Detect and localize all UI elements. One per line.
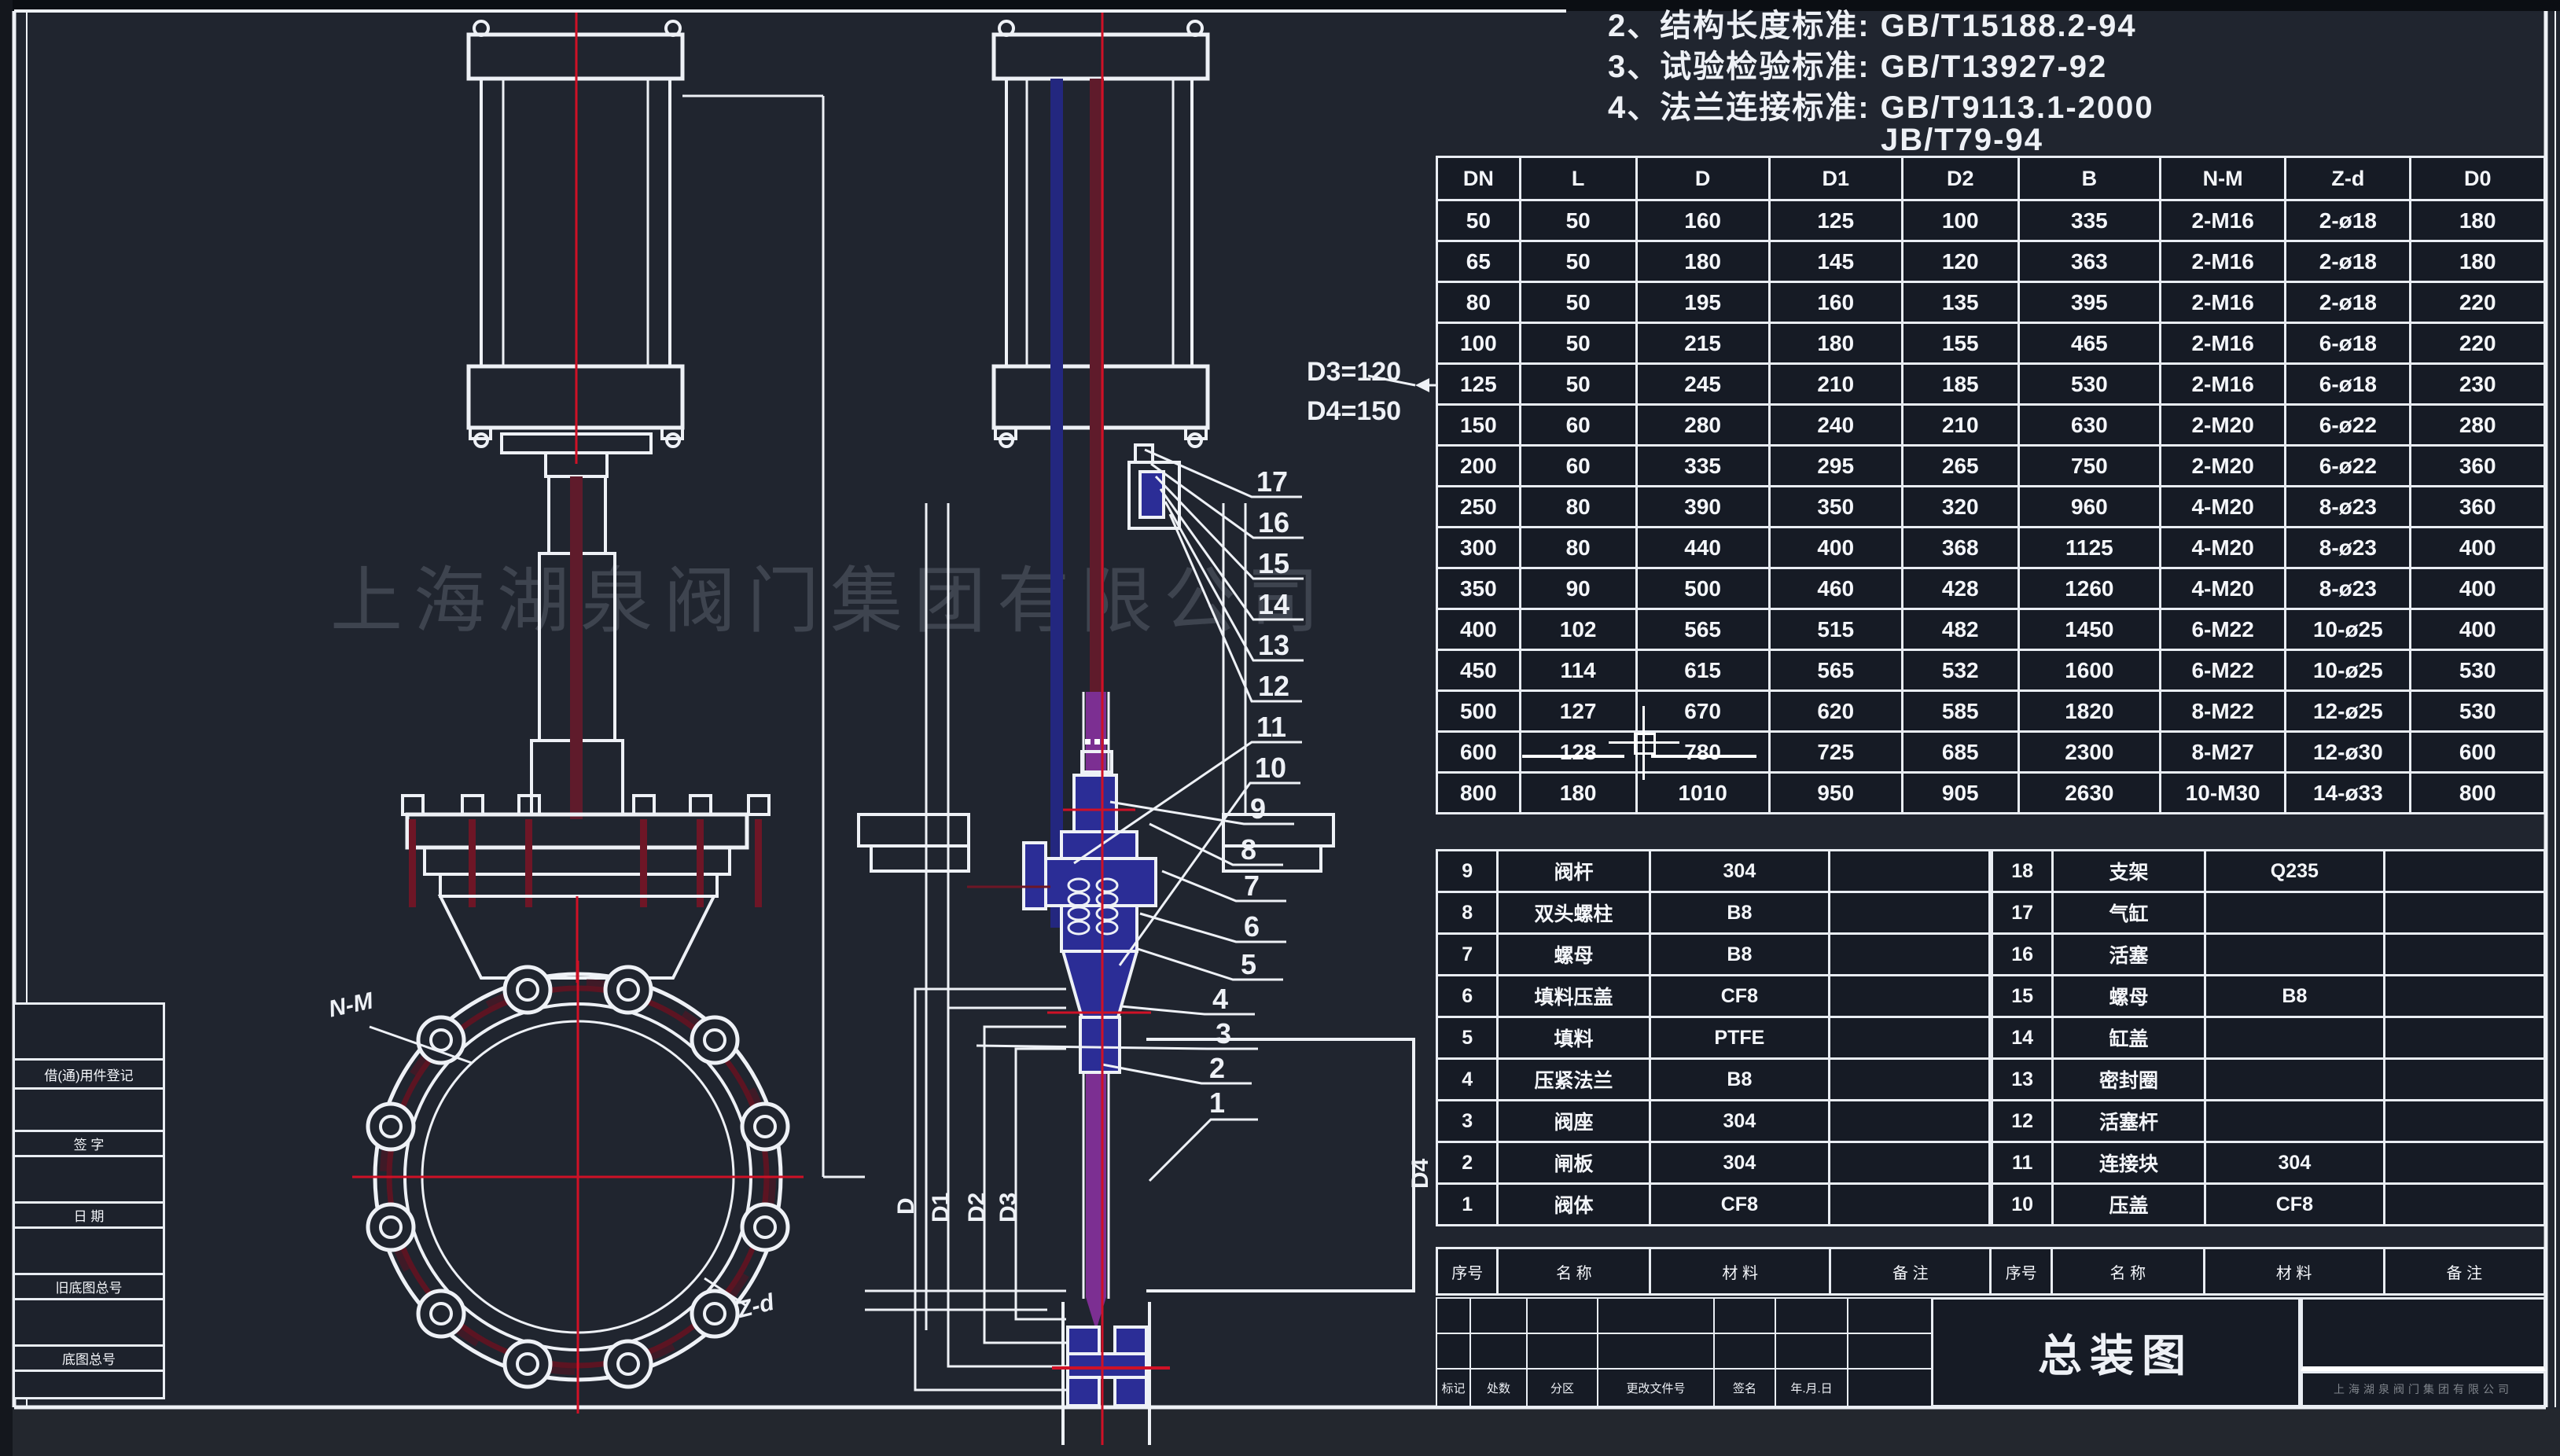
callout-15: 15 xyxy=(1258,547,1289,580)
table-cell xyxy=(1830,1142,1990,1184)
table-cell: 13 xyxy=(1992,1059,2053,1101)
drawing-title: 总装图 xyxy=(1931,1297,2301,1407)
table-cell xyxy=(1830,892,1990,934)
table-cell: 245 xyxy=(1636,364,1769,405)
table-cell: 12-ø30 xyxy=(2286,732,2411,773)
cad-drawing-sheet: 上海湖泉阀门集团有限公司 xyxy=(0,0,2560,1456)
table-cell: CF8 xyxy=(1650,1184,1829,1226)
table-cell: 缸盖 xyxy=(2053,1017,2205,1059)
table-cell: 12-ø25 xyxy=(2286,691,2411,732)
callout-12: 12 xyxy=(1258,670,1289,703)
table-cell: D1 xyxy=(1769,157,1902,200)
table-cell: B8 xyxy=(2205,976,2384,1017)
table-cell: 565 xyxy=(1636,609,1769,650)
bom-container: 9阀杆3048双头螺柱B87螺母B86填料压盖CF85填料PTFE4压紧法兰B8… xyxy=(1436,849,2546,1226)
table-cell: 50 xyxy=(1437,200,1521,241)
table-cell: 闸板 xyxy=(1498,1142,1650,1184)
table-cell: 8-ø23 xyxy=(2286,568,2411,609)
table-cell: 8-ø23 xyxy=(2286,487,2411,528)
d3-value: D3=120 xyxy=(1307,352,1401,392)
bom-table-right: 18支架Q23517气缸16活塞15螺母B814缸盖13密封圈12活塞杆11连接… xyxy=(1991,849,2546,1226)
table-cell: 10 xyxy=(1992,1184,2053,1226)
table-cell: 阀座 xyxy=(1498,1101,1650,1142)
table-cell: 2300 xyxy=(2018,732,2160,773)
selection-underline xyxy=(1522,755,1624,758)
table-cell: 材 料 xyxy=(1650,1248,1830,1295)
table-cell: 90 xyxy=(1520,568,1636,609)
table-cell: 125 xyxy=(1769,200,1902,241)
table-cell: 360 xyxy=(2411,446,2545,487)
table-cell: 压盖 xyxy=(2053,1184,2205,1226)
table-cell: 670 xyxy=(1636,691,1769,732)
table-cell xyxy=(2205,1017,2384,1059)
table-cell: 支架 xyxy=(2053,851,2205,892)
table-cell: 双头螺柱 xyxy=(1498,892,1650,934)
table-cell: 180 xyxy=(2411,200,2545,241)
table-cell: 460 xyxy=(1769,568,1902,609)
table-cell: 304 xyxy=(2205,1142,2384,1184)
table-cell: D0 xyxy=(2411,157,2545,200)
margin-label-borrowed-parts: 借(通)用件登记 xyxy=(13,1058,165,1090)
table-cell: 6-ø18 xyxy=(2286,364,2411,405)
table-cell: 530 xyxy=(2411,691,2545,732)
table-cell: 80 xyxy=(1520,528,1636,568)
table-cell: 2-M20 xyxy=(2161,405,2286,446)
front-view-bonnet xyxy=(403,796,769,978)
table-cell: 950 xyxy=(1769,773,1902,814)
dim-label-d2: D2 xyxy=(964,1193,991,1223)
table-cell: 230 xyxy=(2411,364,2545,405)
bom-header-table: 序号名 称材 料备 注序号名 称材 料备 注 xyxy=(1436,1247,2546,1296)
table-cell: 6-ø22 xyxy=(2286,405,2411,446)
table-cell xyxy=(2385,1017,2545,1059)
table-cell: 6-M22 xyxy=(2161,609,2286,650)
table-cell: 800 xyxy=(1437,773,1521,814)
callout-5: 5 xyxy=(1241,948,1256,981)
table-cell: 2-ø18 xyxy=(2286,282,2411,323)
table-cell: 320 xyxy=(1902,487,2018,528)
table-cell: 304 xyxy=(1650,1142,1829,1184)
table-cell: 4-M20 xyxy=(2161,528,2286,568)
table-cell xyxy=(2205,934,2384,976)
section-guide-rod xyxy=(1050,79,1063,928)
margin-label-master-no: 底图总号 xyxy=(13,1344,165,1372)
table-cell: 100 xyxy=(1902,200,2018,241)
table-cell: B xyxy=(2018,157,2160,200)
table-cell xyxy=(2385,851,2545,892)
table-cell: 螺母 xyxy=(1498,934,1650,976)
table-cell: 960 xyxy=(2018,487,2160,528)
table-cell: 1010 xyxy=(1636,773,1769,814)
table-cell xyxy=(2385,976,2545,1017)
table-cell: 265 xyxy=(1902,446,2018,487)
table-cell: 180 xyxy=(1636,241,1769,282)
table-cell: 1260 xyxy=(2018,568,2160,609)
table-cell xyxy=(1830,1184,1990,1226)
table-cell: 750 xyxy=(2018,446,2160,487)
table-cell: 210 xyxy=(1902,405,2018,446)
table-cell: 160 xyxy=(1636,200,1769,241)
table-cell: 60 xyxy=(1520,446,1636,487)
table-cell: 2-M16 xyxy=(2161,364,2286,405)
table-cell xyxy=(1830,934,1990,976)
standard-note-flange-connection: 4、法兰连接标准: GB/T9113.1-2000 xyxy=(1608,82,2154,127)
table-cell: 350 xyxy=(1769,487,1902,528)
selection-underline xyxy=(1651,755,1756,758)
margin-label-signature: 签 字 xyxy=(13,1130,165,1157)
table-cell: 620 xyxy=(1769,691,1902,732)
table-cell: 2-M16 xyxy=(2161,282,2286,323)
d3-d4-annotation: D3=120 D4=150 xyxy=(1307,352,1401,431)
table-cell: 4 xyxy=(1437,1059,1498,1101)
tb-label-change-doc: 更改文件号 xyxy=(1597,1368,1715,1407)
table-cell: 2630 xyxy=(2018,773,2160,814)
cad-cursor-pickbox xyxy=(1634,733,1656,755)
table-cell: 1450 xyxy=(2018,609,2160,650)
table-cell: 240 xyxy=(1769,405,1902,446)
table-cell: 465 xyxy=(2018,323,2160,364)
table-cell: 螺母 xyxy=(2053,976,2205,1017)
table-cell: 8-ø23 xyxy=(2286,528,2411,568)
table-cell: 14-ø33 xyxy=(2286,773,2411,814)
table-cell: 127 xyxy=(1520,691,1636,732)
bom-header-container: 序号名 称材 料备 注序号名 称材 料备 注 xyxy=(1436,1247,2546,1296)
table-cell: 500 xyxy=(1636,568,1769,609)
table-cell: B8 xyxy=(1650,934,1829,976)
table-cell: 1600 xyxy=(2018,650,2160,691)
table-cell: 280 xyxy=(2411,405,2545,446)
table-cell xyxy=(2385,934,2545,976)
table-cell: 14 xyxy=(1992,1017,2053,1059)
standard-note-structure-length: 2、结构长度标准: GB/T15188.2-94 xyxy=(1608,0,2137,46)
table-cell: 160 xyxy=(1769,282,1902,323)
table-cell: 450 xyxy=(1437,650,1521,691)
table-cell: 填料压盖 xyxy=(1498,976,1650,1017)
callout-17: 17 xyxy=(1256,465,1288,498)
bom-table-left: 9阀杆3048双头螺柱B87螺母B86填料压盖CF85填料PTFE4压紧法兰B8… xyxy=(1436,849,1991,1226)
dimension-brackets-left xyxy=(915,989,1066,1390)
table-cell: 2-M16 xyxy=(2161,323,2286,364)
table-cell: 7 xyxy=(1437,934,1498,976)
table-cell xyxy=(2385,892,2545,934)
table-cell xyxy=(2385,1142,2545,1184)
table-cell: 1 xyxy=(1437,1184,1498,1226)
table-cell: 活塞杆 xyxy=(2053,1101,2205,1142)
table-cell: 6-ø22 xyxy=(2286,446,2411,487)
table-cell: 备 注 xyxy=(2384,1248,2544,1295)
callout-7: 7 xyxy=(1244,870,1260,903)
table-cell: 8-M22 xyxy=(2161,691,2286,732)
table-cell: 390 xyxy=(1636,487,1769,528)
table-cell: 材 料 xyxy=(2204,1248,2384,1295)
table-cell: 180 xyxy=(1520,773,1636,814)
table-cell: 195 xyxy=(1636,282,1769,323)
tb-label-count: 处数 xyxy=(1469,1368,1528,1407)
table-cell: 114 xyxy=(1520,650,1636,691)
table-cell: 585 xyxy=(1902,691,2018,732)
table-cell: 102 xyxy=(1520,609,1636,650)
standard-note-test-inspection: 3、试验检验标准: GB/T13927-92 xyxy=(1608,41,2107,86)
table-cell: L xyxy=(1520,157,1636,200)
table-cell: 335 xyxy=(2018,200,2160,241)
table-cell: 2 xyxy=(1437,1142,1498,1184)
table-cell: 400 xyxy=(2411,528,2545,568)
table-cell: 2-M16 xyxy=(2161,241,2286,282)
table-cell: 400 xyxy=(2411,609,2545,650)
table-cell xyxy=(2385,1101,2545,1142)
table-cell: 500 xyxy=(1437,691,1521,732)
table-cell: 180 xyxy=(1769,323,1902,364)
table-cell: 180 xyxy=(2411,241,2545,282)
projection-line xyxy=(682,96,865,1177)
table-cell: 50 xyxy=(1520,200,1636,241)
table-cell: 280 xyxy=(1636,405,1769,446)
table-cell: D2 xyxy=(1902,157,2018,200)
table-cell: 150 xyxy=(1437,405,1521,446)
table-cell: 400 xyxy=(2411,568,2545,609)
table-cell: 50 xyxy=(1520,323,1636,364)
table-cell: 3 xyxy=(1437,1101,1498,1142)
dimension-bracket-d4 xyxy=(1146,1039,1414,1291)
table-cell xyxy=(1830,1101,1990,1142)
table-cell: 530 xyxy=(2018,364,2160,405)
table-cell: 6-ø18 xyxy=(2286,323,2411,364)
table-cell: 4-M20 xyxy=(2161,568,2286,609)
table-cell: 6-M22 xyxy=(2161,650,2286,691)
table-cell: 18 xyxy=(1992,851,2053,892)
callout-8: 8 xyxy=(1241,833,1256,866)
table-cell: 名 称 xyxy=(2051,1248,2204,1295)
table-cell: 8-M27 xyxy=(2161,732,2286,773)
table-cell: B8 xyxy=(1650,892,1829,934)
callout-4: 4 xyxy=(1212,983,1228,1016)
table-cell: 50 xyxy=(1520,364,1636,405)
table-cell: 120 xyxy=(1902,241,2018,282)
dim-label-d: D xyxy=(893,1197,920,1215)
table-cell: 295 xyxy=(1769,446,1902,487)
table-cell: 145 xyxy=(1769,241,1902,282)
section-packing-assembly xyxy=(1024,739,1156,1072)
dimension-table: DNLDD1D2BN-MZ-dD0 50501601251003352-M162… xyxy=(1436,156,2546,814)
table-cell: 压紧法兰 xyxy=(1498,1059,1650,1101)
table-cell: 名 称 xyxy=(1498,1248,1650,1295)
table-cell: 482 xyxy=(1902,609,2018,650)
table-cell: 400 xyxy=(1437,609,1521,650)
table-cell: 15 xyxy=(1992,976,2053,1017)
table-cell: 10-ø25 xyxy=(2286,650,2411,691)
callout-13: 13 xyxy=(1258,629,1289,662)
margin-label-date: 日 期 xyxy=(13,1201,165,1229)
table-cell: 515 xyxy=(1769,609,1902,650)
table-cell xyxy=(2385,1184,2545,1226)
callout-6: 6 xyxy=(1244,910,1260,943)
table-cell: 阀杆 xyxy=(1498,851,1650,892)
table-cell: 50 xyxy=(1520,241,1636,282)
tb-drawing-number-cell xyxy=(2301,1297,2546,1371)
d4-value: D4=150 xyxy=(1307,392,1401,431)
table-cell: 2-ø18 xyxy=(2286,241,2411,282)
table-cell: 备 注 xyxy=(1830,1248,1991,1295)
front-view-stem xyxy=(570,476,583,819)
tb-label-zone: 分区 xyxy=(1526,1368,1598,1407)
table-cell: Z-d xyxy=(2286,157,2411,200)
table-cell xyxy=(1830,1017,1990,1059)
table-cell: CF8 xyxy=(1650,976,1829,1017)
table-cell: 2-ø18 xyxy=(2286,200,2411,241)
table-cell: 填料 xyxy=(1498,1017,1650,1059)
table-cell: D xyxy=(1636,157,1769,200)
callout-2: 2 xyxy=(1209,1052,1225,1085)
dim-label-d1: D1 xyxy=(928,1193,954,1223)
table-cell: 395 xyxy=(2018,282,2160,323)
margin-strip: 借(通)用件登记 签 字 日 期 旧底图总号 底图总号 xyxy=(13,1005,165,1399)
callout-14: 14 xyxy=(1258,588,1289,621)
margin-label-old-master-no: 旧底图总号 xyxy=(13,1273,165,1300)
table-cell: 530 xyxy=(2411,650,2545,691)
table-cell: 250 xyxy=(1437,487,1521,528)
table-cell: 630 xyxy=(2018,405,2160,446)
table-cell: 800 xyxy=(2411,773,2545,814)
tb-label-mark: 标记 xyxy=(1436,1368,1471,1407)
table-cell: 17 xyxy=(1992,892,2053,934)
table-cell: 密封圈 xyxy=(2053,1059,2205,1101)
table-cell: 532 xyxy=(1902,650,2018,691)
table-cell: 185 xyxy=(1902,364,2018,405)
table-cell: 12 xyxy=(1992,1101,2053,1142)
table-cell: 80 xyxy=(1520,487,1636,528)
table-cell: 阀体 xyxy=(1498,1184,1650,1226)
table-cell: B8 xyxy=(1650,1059,1829,1101)
table-cell xyxy=(2205,892,2384,934)
tb-label-signature: 签名 xyxy=(1713,1368,1776,1407)
table-cell: 2-M16 xyxy=(2161,200,2286,241)
table-cell: 序号 xyxy=(1437,1248,1498,1295)
table-cell: 215 xyxy=(1636,323,1769,364)
table-cell: 220 xyxy=(2411,282,2545,323)
table-cell: 304 xyxy=(1650,851,1829,892)
title-block: 标记 处数 分区 更改文件号 签名 年.月.日 总装图 上海湖泉阀门集团有限公司 xyxy=(1436,1297,2546,1407)
table-cell: 11 xyxy=(1992,1142,2053,1184)
table-cell: 1820 xyxy=(2018,691,2160,732)
table-cell: 气缸 xyxy=(2053,892,2205,934)
table-cell: 685 xyxy=(1902,732,2018,773)
table-cell: 155 xyxy=(1902,323,2018,364)
callout-3: 3 xyxy=(1216,1017,1231,1050)
table-cell: 600 xyxy=(1437,732,1521,773)
table-cell: 300 xyxy=(1437,528,1521,568)
bom-right-body: 18支架Q23517气缸16活塞15螺母B814缸盖13密封圈12活塞杆11连接… xyxy=(1992,851,2545,1226)
table-cell: 220 xyxy=(2411,323,2545,364)
table-cell: 210 xyxy=(1769,364,1902,405)
table-cell: N-M xyxy=(2161,157,2286,200)
table-cell: 16 xyxy=(1992,934,2053,976)
dim-label-d3: D3 xyxy=(995,1193,1022,1223)
table-cell: 363 xyxy=(2018,241,2160,282)
table-cell: 304 xyxy=(1650,1101,1829,1142)
table-cell: 905 xyxy=(1902,773,2018,814)
table-cell: PTFE xyxy=(1650,1017,1829,1059)
table-cell xyxy=(2385,1059,2545,1101)
table-cell: 8 xyxy=(1437,892,1498,934)
table-cell xyxy=(1830,851,1990,892)
table-cell: 725 xyxy=(1769,732,1902,773)
table-cell: 6 xyxy=(1437,976,1498,1017)
dimension-table-header: DNLDD1D2BN-MZ-dD0 xyxy=(1437,157,2545,200)
callout-1: 1 xyxy=(1209,1086,1225,1120)
table-cell: 4-M20 xyxy=(2161,487,2286,528)
table-cell: 615 xyxy=(1636,650,1769,691)
dimension-table-body: 50501601251003352-M162-ø1818065501801451… xyxy=(1437,200,2545,814)
table-cell: 60 xyxy=(1520,405,1636,446)
table-cell: 65 xyxy=(1437,241,1521,282)
table-cell: 600 xyxy=(2411,732,2545,773)
table-cell: 400 xyxy=(1769,528,1902,568)
table-cell: 335 xyxy=(1636,446,1769,487)
table-cell xyxy=(1830,976,1990,1017)
table-cell: 360 xyxy=(2411,487,2545,528)
table-cell: 1125 xyxy=(2018,528,2160,568)
table-cell: 5 xyxy=(1437,1017,1498,1059)
tb-label-date: 年.月.日 xyxy=(1775,1368,1848,1407)
callout-9: 9 xyxy=(1250,792,1266,825)
section-seat xyxy=(1063,1302,1149,1445)
dim-label-d4: D4 xyxy=(1407,1159,1434,1189)
table-cell: 序号 xyxy=(1991,1248,2051,1295)
table-cell: 50 xyxy=(1520,282,1636,323)
table-cell: 565 xyxy=(1769,650,1902,691)
callout-10: 10 xyxy=(1255,752,1286,785)
table-cell: 2-M20 xyxy=(2161,446,2286,487)
table-cell: 125 xyxy=(1437,364,1521,405)
tb-company-line: 上海湖泉阀门集团有限公司 xyxy=(2301,1371,2546,1407)
table-cell: Q235 xyxy=(2205,851,2384,892)
table-cell xyxy=(1830,1059,1990,1101)
table-cell: 368 xyxy=(1902,528,2018,568)
table-cell: CF8 xyxy=(2205,1184,2384,1226)
table-cell: 200 xyxy=(1437,446,1521,487)
callout-16: 16 xyxy=(1258,506,1289,539)
table-cell xyxy=(2205,1059,2384,1101)
table-cell: 428 xyxy=(1902,568,2018,609)
table-cell: 128 xyxy=(1520,732,1636,773)
bom-left-body: 9阀杆3048双头螺柱B87螺母B86填料压盖CF85填料PTFE4压紧法兰B8… xyxy=(1437,851,1990,1226)
table-cell: 80 xyxy=(1437,282,1521,323)
table-cell: 9 xyxy=(1437,851,1498,892)
bom-header-body: 序号名 称材 料备 注序号名 称材 料备 注 xyxy=(1437,1248,2545,1295)
table-cell: DN xyxy=(1437,157,1521,200)
table-cell: 10-ø25 xyxy=(2286,609,2411,650)
callout-11: 11 xyxy=(1256,711,1286,744)
table-cell: 100 xyxy=(1437,323,1521,364)
table-cell: 活塞 xyxy=(2053,934,2205,976)
standard-note-jbt: JB/T79-94 xyxy=(1881,123,2043,158)
table-cell: 440 xyxy=(1636,528,1769,568)
table-cell: 135 xyxy=(1902,282,2018,323)
dimension-table-container: DNLDD1D2BN-MZ-dD0 50501601251003352-M162… xyxy=(1436,156,2546,814)
table-cell: 连接块 xyxy=(2053,1142,2205,1184)
table-cell: 350 xyxy=(1437,568,1521,609)
table-cell: 780 xyxy=(1636,732,1769,773)
table-cell: 10-M30 xyxy=(2161,773,2286,814)
table-cell xyxy=(2205,1101,2384,1142)
